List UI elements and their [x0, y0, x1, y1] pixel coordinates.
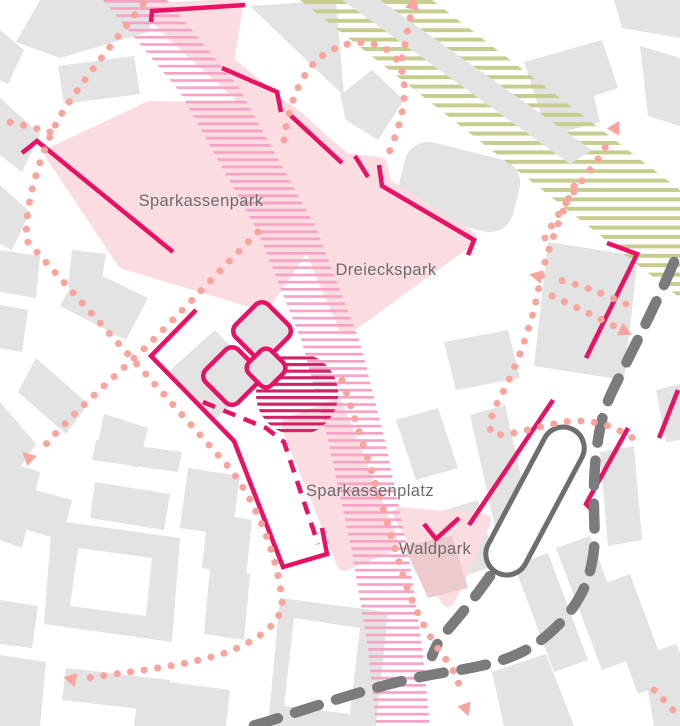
building — [202, 512, 252, 576]
sparkassenpark-label: Sparkassenpark — [139, 192, 264, 210]
building — [642, 644, 680, 726]
building — [600, 446, 642, 546]
route-arrow — [607, 117, 626, 135]
site-plan-svg: Sparkassenpark Dreieckspark Sparkassenpl… — [0, 0, 680, 726]
building — [614, 0, 680, 38]
waldpark-label: Waldpark — [399, 540, 472, 558]
building — [396, 408, 458, 480]
building — [90, 482, 170, 530]
building — [44, 520, 180, 642]
sparkassenplatz-label: Sparkassenplatz — [306, 482, 434, 500]
building — [134, 678, 230, 726]
building — [58, 56, 140, 104]
route-arrow — [528, 267, 544, 283]
building — [0, 305, 28, 352]
route-arrow — [457, 702, 475, 719]
dreieckspark-label: Dreieckspark — [335, 261, 436, 279]
building — [18, 358, 88, 434]
building — [204, 568, 250, 640]
building — [340, 70, 404, 140]
building — [0, 655, 46, 726]
building — [640, 46, 680, 126]
building — [0, 98, 40, 172]
site-plan-map: Sparkassenpark Dreieckspark Sparkassenpl… — [0, 0, 680, 726]
building — [0, 250, 40, 298]
building — [0, 600, 38, 648]
